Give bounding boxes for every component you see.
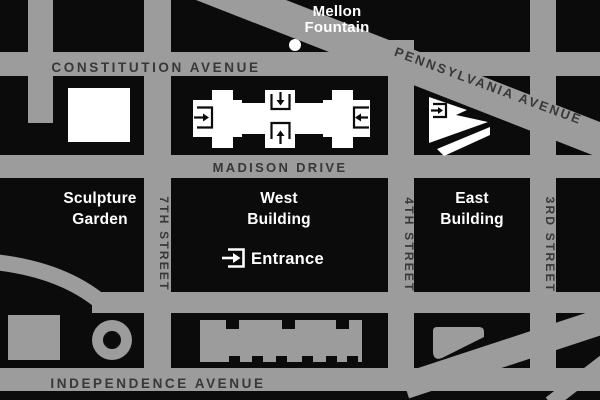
3rd-street-label: 3RD STREET (543, 197, 557, 294)
independence-avenue-label: INDEPENDENCE AVENUE (50, 376, 265, 391)
sculpture-garden-label-line1: Sculpture (63, 190, 136, 207)
mellon-fountain-label-line2: Fountain (305, 19, 370, 36)
gallery-area-map: Entrance CONSTITUTION AVENUE MADISON DRI… (0, 0, 600, 400)
sculpture-garden-label-line2: Garden (72, 211, 127, 228)
west-building-label-line2: Building (247, 211, 311, 228)
map-screenshot: Entrance CONSTITUTION AVENUE MADISON DRI… (0, 0, 600, 400)
sculpture-garden-pavilion (68, 88, 130, 142)
building-footprint-south-museum (200, 320, 362, 362)
building-footprint-southwest (8, 315, 60, 360)
7th-street-label: 7TH STREET (157, 196, 171, 291)
east-building-label-line2: Building (440, 211, 504, 228)
east-building-label-line1: East (455, 190, 489, 207)
west-building-label-line1: West (260, 190, 298, 207)
fountain-circle-center (103, 331, 121, 349)
mellon-fountain-label-line1: Mellon (313, 3, 362, 20)
entrance-label: Entrance (251, 250, 324, 268)
mellon-fountain-dot (289, 39, 301, 51)
4th-street-label: 4TH STREET (402, 197, 416, 292)
madison-drive-label: MADISON DRIVE (213, 160, 348, 175)
constitution-avenue-label: CONSTITUTION AVENUE (51, 60, 260, 75)
road-jefferson-drive (92, 292, 600, 313)
